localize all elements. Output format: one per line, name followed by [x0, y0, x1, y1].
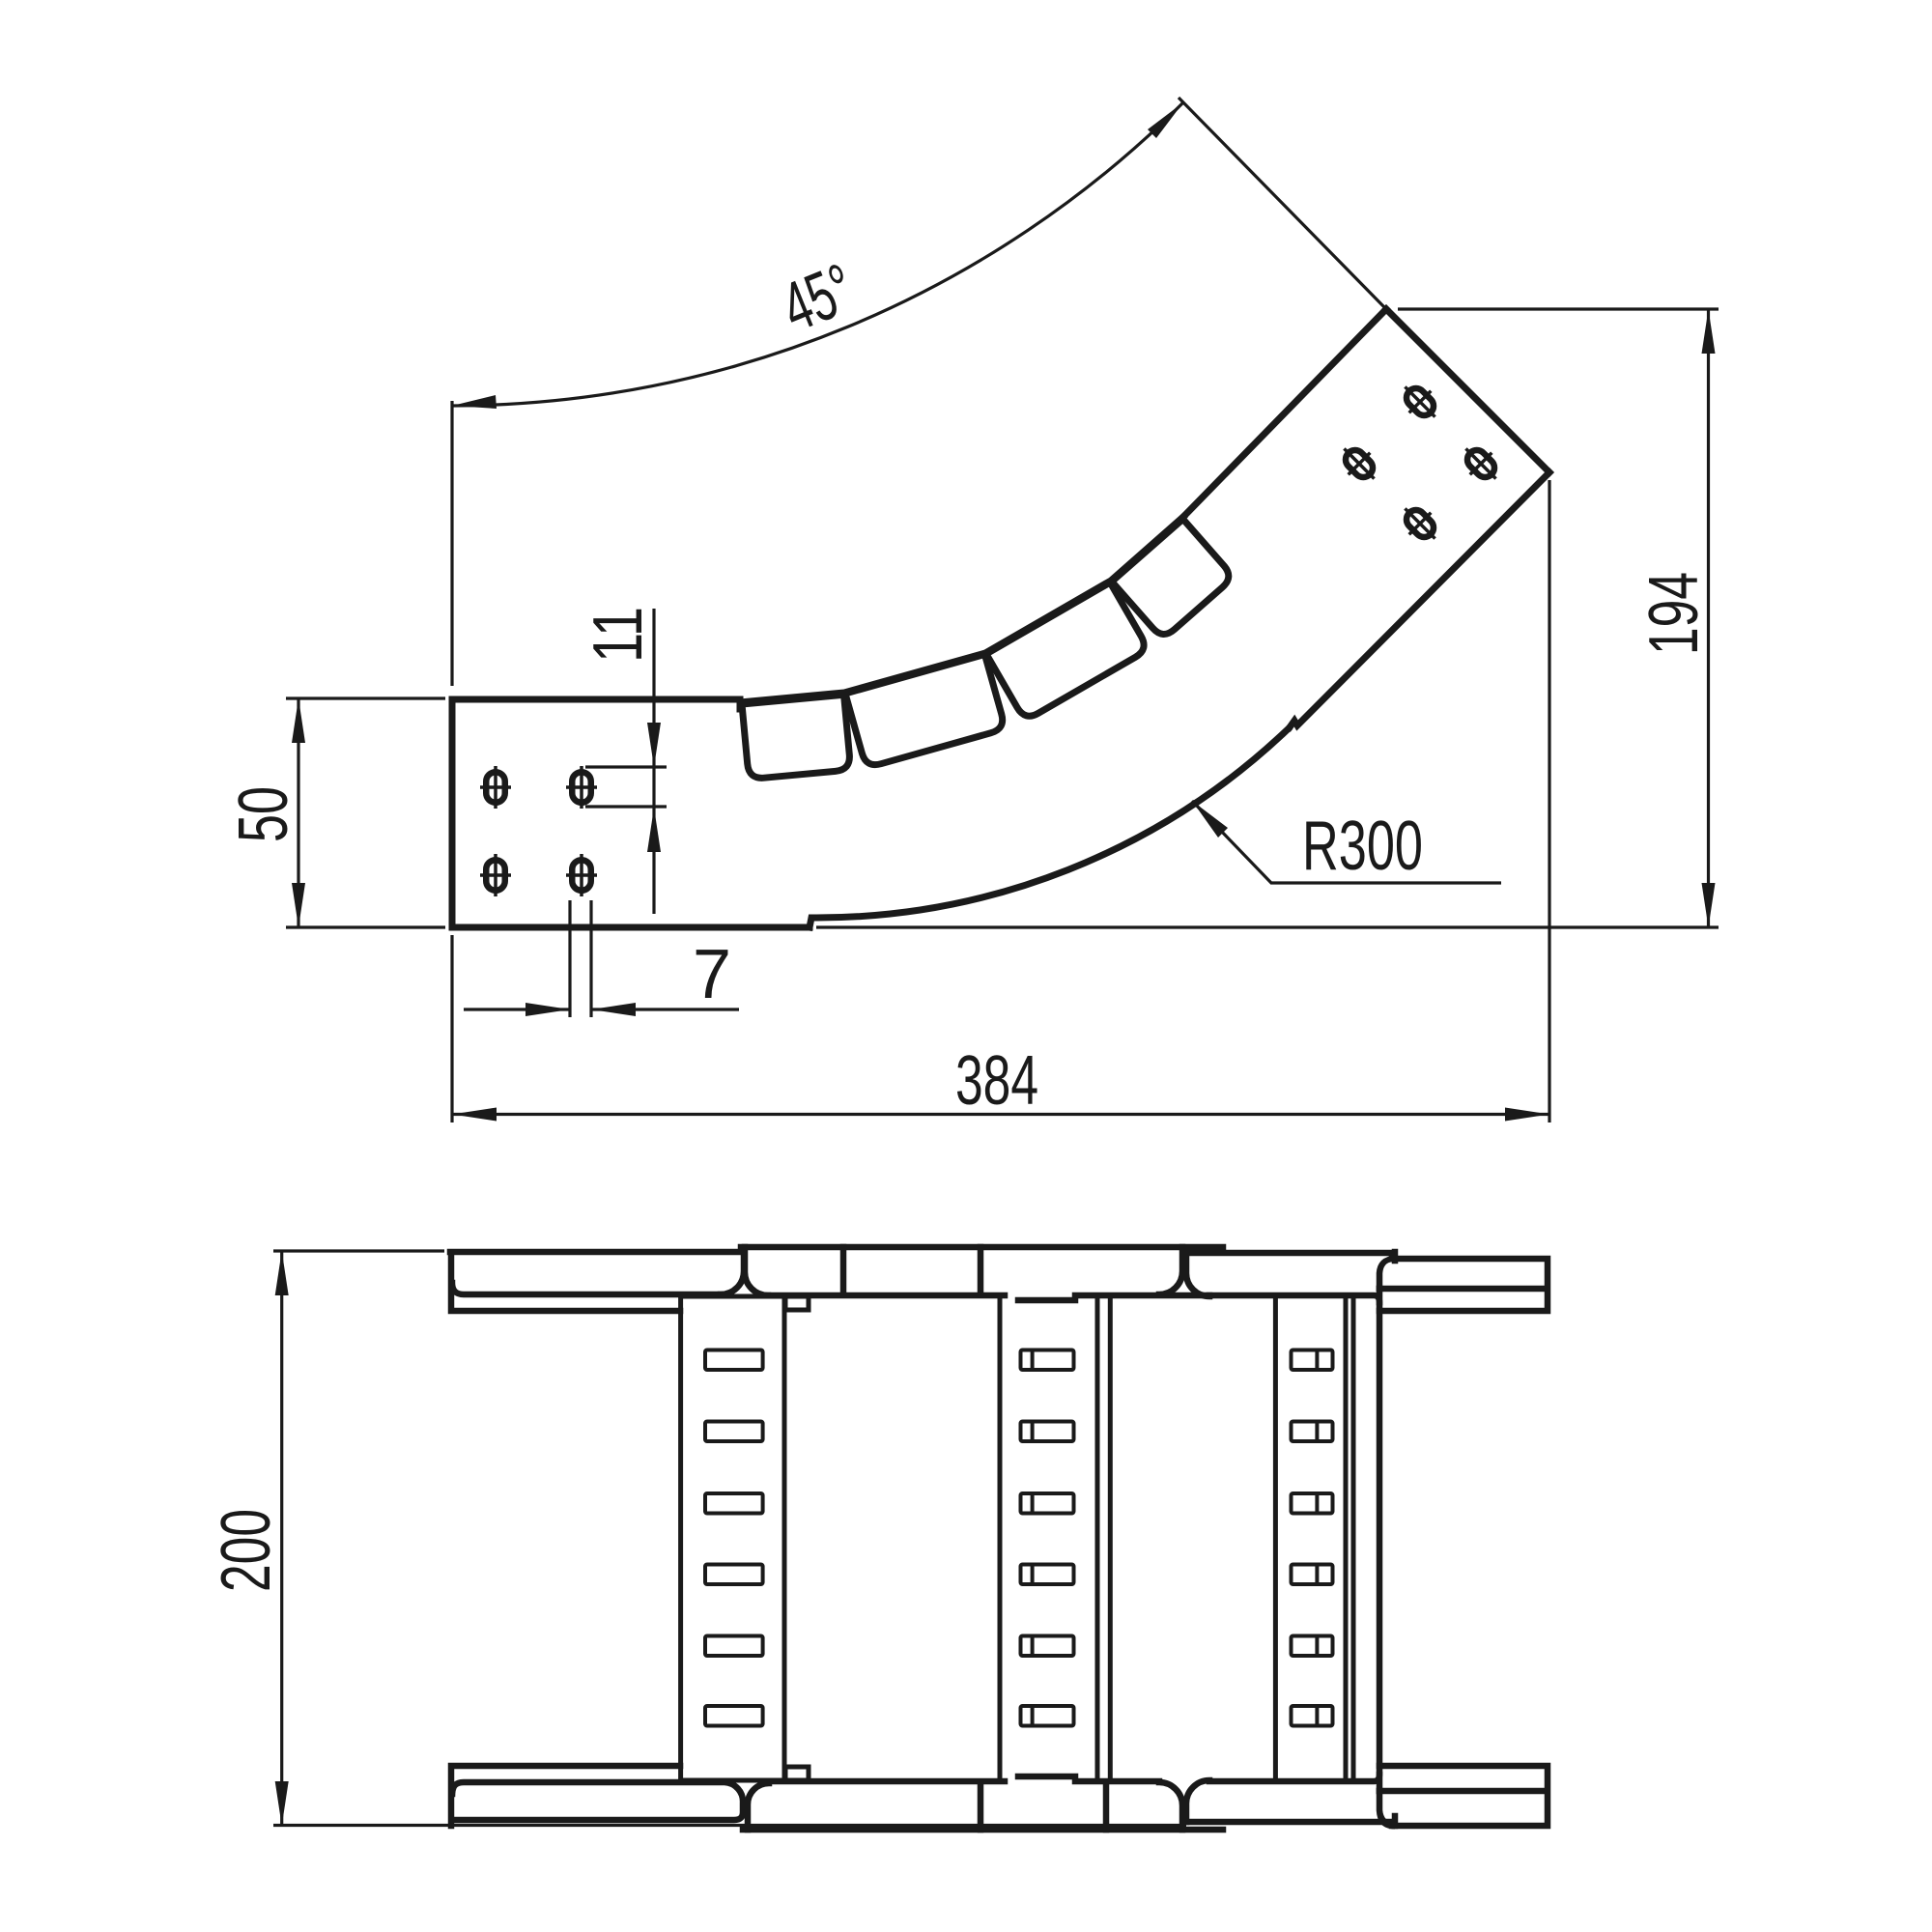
- svg-text:200: 200: [208, 1509, 285, 1592]
- svg-text:R300: R300: [1302, 808, 1423, 885]
- svg-text:7: 7: [693, 936, 731, 1013]
- svg-text:50: 50: [225, 786, 302, 842]
- svg-text:11: 11: [580, 607, 657, 663]
- svg-text:194: 194: [1635, 572, 1713, 655]
- svg-text:384: 384: [955, 1042, 1038, 1120]
